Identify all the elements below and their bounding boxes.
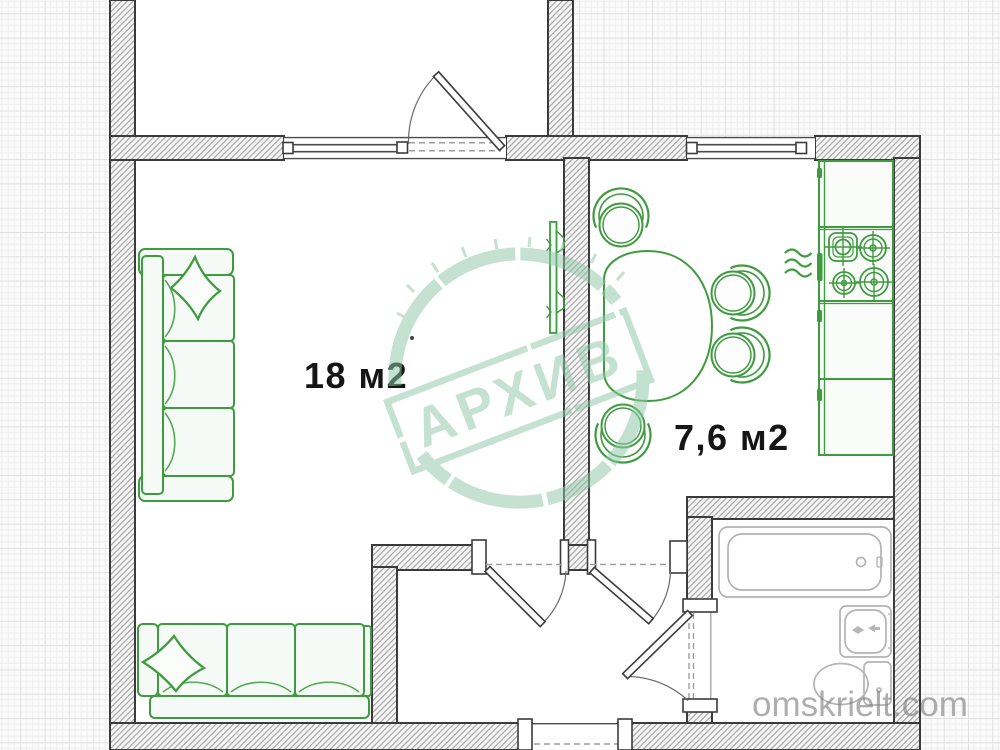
svg-text:omskrielt.com: omskrielt.com — [752, 685, 968, 724]
svg-text:7,6 м2: 7,6 м2 — [674, 417, 790, 458]
